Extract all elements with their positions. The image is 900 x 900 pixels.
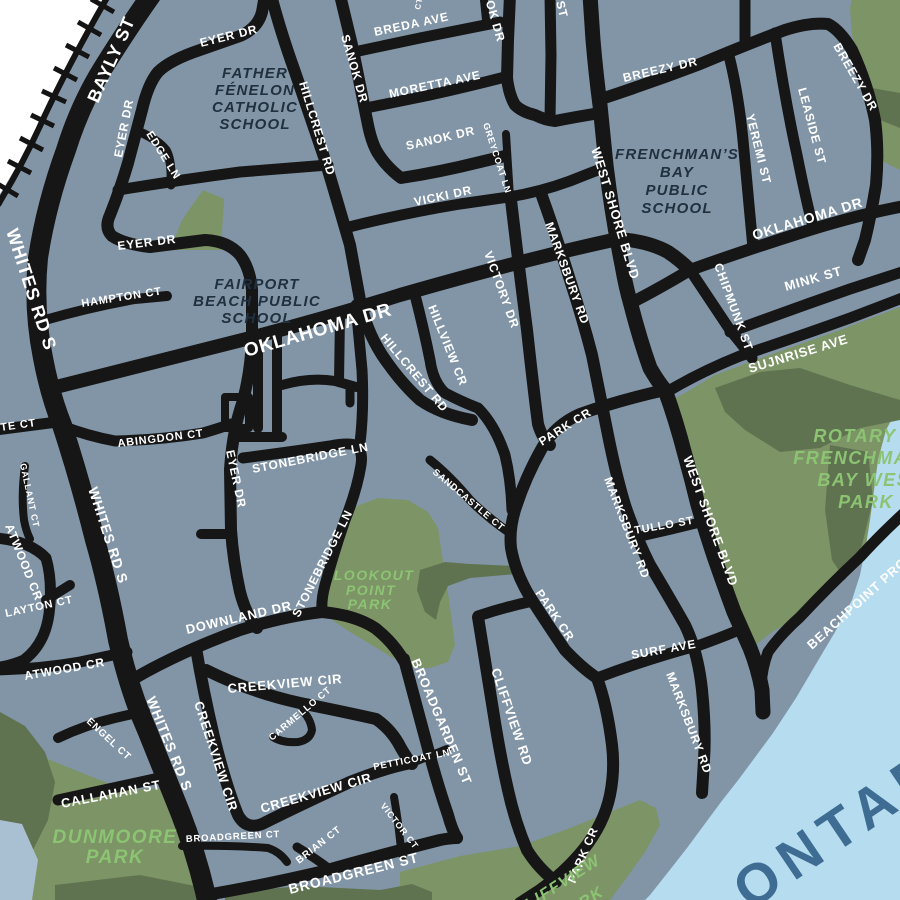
svg-text:PARK: PARK xyxy=(348,596,393,612)
svg-text:BAY WEST: BAY WEST xyxy=(817,470,900,490)
svg-text:PARK: PARK xyxy=(86,847,144,868)
svg-text:SCHOOL: SCHOOL xyxy=(641,200,712,217)
svg-text:LOOKOUT: LOOKOUT xyxy=(334,567,415,583)
svg-text:DUNMOORE: DUNMOORE xyxy=(53,827,178,848)
svg-text:ROTARY: ROTARY xyxy=(813,426,897,446)
svg-text:FÉNELON: FÉNELON xyxy=(215,82,295,99)
svg-text:SCHOOL: SCHOOL xyxy=(219,116,290,133)
svg-text:FRENCHMAN’S: FRENCHMAN’S xyxy=(793,448,900,468)
svg-text:PUBLIC: PUBLIC xyxy=(645,182,708,199)
svg-text:BEACH PUBLIC: BEACH PUBLIC xyxy=(193,293,321,310)
svg-text:SCHOOL: SCHOOL xyxy=(221,310,292,327)
svg-text:FAIRPORT: FAIRPORT xyxy=(214,276,300,293)
svg-text:BAY: BAY xyxy=(660,164,695,181)
svg-text:PARK: PARK xyxy=(838,492,894,512)
svg-text:FATHER: FATHER xyxy=(222,65,288,82)
svg-text:FRENCHMAN’S: FRENCHMAN’S xyxy=(615,146,739,163)
svg-text:CATHOLIC: CATHOLIC xyxy=(212,99,298,116)
